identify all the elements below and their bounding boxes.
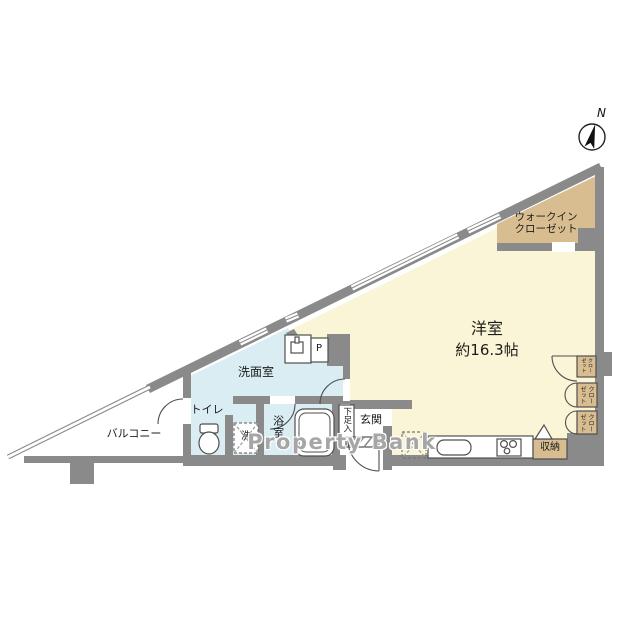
balcony-label: バルコニー [107,428,162,441]
pipe-space-label: P [316,343,322,355]
toilet-icon [199,424,219,454]
storage-label: 収納 [540,442,560,454]
closet-label-top: クローゼット [579,358,593,376]
wall-protrusion [595,352,612,376]
walk-in-closet-label-line1: ウォークイン [515,212,578,224]
kitchen-counter [428,436,533,458]
main-room-area-label: 約16.3帖 [455,342,518,359]
floor-plan: N 洋室 約16.3帖 ウォークイン クローゼット 洗面室 トイレ バルコニー … [0,0,640,640]
stove-icon [497,439,521,456]
closet-label-bottom: クローゼット [580,414,594,433]
north-label: N [597,107,606,121]
entrance-label: 玄関 [360,414,382,427]
main-room-label: 洋室 [471,320,503,338]
walk-in-closet-label-line2: クローゼット [515,224,578,236]
washbasin-icon [285,335,311,363]
kitchen-sink-icon [437,440,471,455]
watermark: Property Bank [247,430,436,454]
toilet-label: トイレ [191,404,224,417]
closet-label-mid: クローゼット [580,386,594,405]
pillar [70,463,94,484]
washroom-label: 洗面室 [238,366,274,380]
balcony-floor-slab [24,456,183,463]
duct-block [327,334,350,366]
compass-icon [579,123,605,150]
floor-plan-drawing [0,0,640,640]
walk-in-closet-label: ウォークイン クローゼット [515,212,578,235]
